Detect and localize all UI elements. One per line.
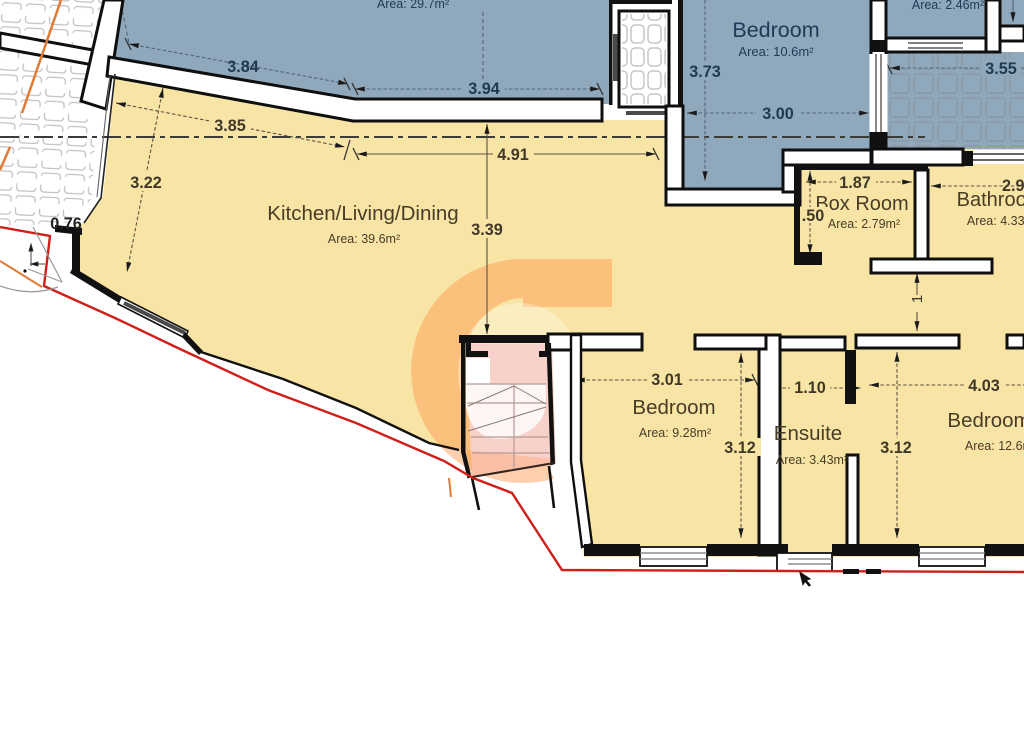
svg-text:4.91: 4.91 xyxy=(497,146,529,164)
svg-text:Area: 4.33m²: Area: 4.33m² xyxy=(967,214,1024,228)
svg-text:3.84: 3.84 xyxy=(227,58,259,76)
svg-text:1.87: 1.87 xyxy=(839,174,871,192)
svg-text:Area: 10.6m²: Area: 10.6m² xyxy=(738,44,814,59)
svg-text:Bedroom: Bedroom xyxy=(947,409,1024,432)
svg-text:3.22: 3.22 xyxy=(130,174,162,192)
svg-text:3.39: 3.39 xyxy=(471,221,503,239)
svg-text:Area: 3.43m²: Area: 3.43m² xyxy=(776,453,848,467)
svg-text:.50: .50 xyxy=(802,207,825,225)
svg-text:3.12: 3.12 xyxy=(724,439,756,457)
svg-text:3.01: 3.01 xyxy=(651,371,683,389)
svg-text:3.55: 3.55 xyxy=(985,60,1017,78)
svg-text:Area: 29.7m²: Area: 29.7m² xyxy=(377,0,449,11)
svg-text:1.10: 1.10 xyxy=(794,379,826,397)
svg-text:3.00: 3.00 xyxy=(762,105,794,123)
svg-text:Kitchen/Living/Dining: Kitchen/Living/Dining xyxy=(267,202,458,225)
svg-text:3.85: 3.85 xyxy=(214,117,246,135)
svg-text:Bedroom: Bedroom xyxy=(732,18,819,42)
svg-text:Area: 9.28m²: Area: 9.28m² xyxy=(639,426,711,440)
svg-text:Area: 2.46m²: Area: 2.46m² xyxy=(912,0,984,12)
svg-text:0.76: 0.76 xyxy=(50,215,82,233)
svg-text:1: 1 xyxy=(909,295,926,303)
svg-text:3.94: 3.94 xyxy=(468,80,500,98)
svg-text:Bedroom: Bedroom xyxy=(632,396,715,419)
svg-text:Ensuite: Ensuite xyxy=(774,422,842,445)
svg-text:Box Room: Box Room xyxy=(815,193,908,215)
svg-text:2.95: 2.95 xyxy=(1002,177,1024,195)
svg-text:4.03: 4.03 xyxy=(968,377,1000,395)
svg-text:3.73: 3.73 xyxy=(689,63,721,81)
svg-text:Area: 39.6m²: Area: 39.6m² xyxy=(328,232,400,246)
svg-text:Area: 2.79m²: Area: 2.79m² xyxy=(828,217,900,231)
svg-text:Area: 12.6m²: Area: 12.6m² xyxy=(965,439,1024,453)
svg-text:3.12: 3.12 xyxy=(880,439,912,457)
